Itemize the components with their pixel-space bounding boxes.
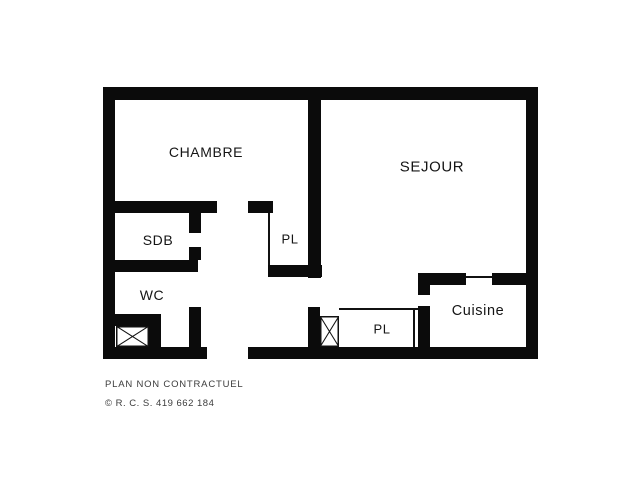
cuisine-north-wall-east: [492, 273, 526, 285]
room-label-chambre: CHAMBRE: [169, 144, 243, 160]
pl-hall-south-wall: [268, 265, 322, 277]
rcs-number: © R. C. S. 419 662 184: [105, 398, 243, 409]
cuisine-west-wall: [418, 306, 430, 347]
sdb-wc-divider: [115, 260, 198, 272]
exterior-wall-left: [103, 87, 115, 359]
exterior-wall-bottom-right: [248, 347, 538, 359]
plan-footer: PLAN NON CONTRACTUEL © R. C. S. 419 662 …: [105, 379, 243, 409]
duct-box-wc-icon: [116, 326, 149, 347]
room-label-wc: WC: [140, 287, 165, 303]
duct-enclosure-right: [149, 326, 161, 347]
room-label-sejour: SEJOUR: [400, 159, 464, 176]
chambre-south-wall-east: [248, 201, 273, 213]
chambre-south-wall-west: [115, 201, 217, 213]
partition-sejour-lower: [308, 307, 320, 347]
exterior-wall-top: [103, 87, 538, 100]
duct-box-entry-icon: [320, 316, 339, 347]
room-label-pl-entry: PL: [373, 322, 390, 337]
floor-plan-page: CHAMBRESEJOURSDBWCPLPLCuisine PLAN NON C…: [0, 0, 640, 494]
pl-hall-west-line: [268, 213, 270, 265]
disclaimer-text: PLAN NON CONTRACTUEL: [105, 379, 243, 390]
partition-sejour-upper: [308, 100, 321, 278]
pl-entry-top-line: [339, 308, 418, 310]
room-label-pl-hall: PL: [281, 232, 298, 247]
wc-east-wall: [189, 307, 201, 347]
exterior-wall-bottom-left: [103, 347, 207, 359]
duct-enclosure-top: [115, 314, 161, 326]
room-label-cuisine: Cuisine: [452, 303, 505, 319]
sdb-door-jamb-upper: [189, 213, 201, 233]
sdb-door-jamb-lower: [189, 247, 201, 260]
floor-plan: CHAMBRESEJOURSDBWCPLPLCuisine: [0, 0, 640, 494]
pl-entry-right-line: [413, 308, 415, 347]
exterior-wall-right: [526, 87, 538, 359]
cuisine-opening-line: [466, 276, 492, 278]
room-label-sdb: SDB: [143, 232, 174, 248]
cuisine-north-wall-west: [418, 273, 466, 285]
